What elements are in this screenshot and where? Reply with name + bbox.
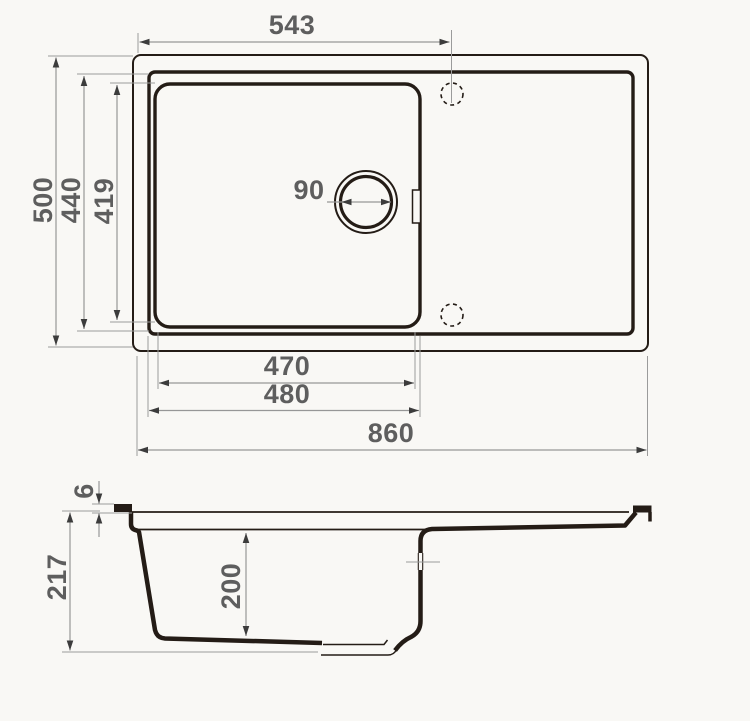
bowl-right-wall-and-drainboard xyxy=(421,513,637,554)
dim-label-overall-depth: 500 xyxy=(28,177,58,224)
dim-label-rim-opening-depth: 440 xyxy=(56,177,86,224)
dim-label-rim-thickness: 6 xyxy=(69,483,99,499)
technical-drawing-canvas: 543 500 440 419 90 xyxy=(0,0,750,721)
top-view: 543 500 440 419 90 xyxy=(28,10,648,456)
dim-label-bowl-inner-width: 470 xyxy=(264,351,311,381)
side-section-view: 6 217 200 xyxy=(42,481,652,655)
drain-recess-top xyxy=(323,640,388,645)
faucet-hole-bottom xyxy=(441,304,463,326)
dim-faucet-offset: 543 xyxy=(138,10,452,103)
dim-label-bowl-depth: 200 xyxy=(216,563,246,610)
overflow-slot xyxy=(413,190,421,223)
dim-label-faucet-offset: 543 xyxy=(269,10,316,40)
dim-bowl-depth: 200 xyxy=(216,533,246,636)
drain-recess-bottom xyxy=(321,650,397,656)
dim-label-drain-diameter: 90 xyxy=(293,175,324,205)
dim-bowl-front-to-back: 419 xyxy=(89,83,155,322)
dim-label-overall-height: 217 xyxy=(42,554,72,601)
bowl-edge xyxy=(155,84,420,327)
dim-label-overall-width: 860 xyxy=(368,418,415,448)
dim-label-bowl-outer-width: 480 xyxy=(264,379,311,409)
dim-label-bowl-front-to-back: 419 xyxy=(89,178,119,225)
dim-overall-width: 860 xyxy=(137,356,648,456)
sink-drawing: 543 500 440 419 90 xyxy=(0,0,750,721)
bowl-right-wall-lower xyxy=(395,570,421,651)
dim-overall-height: 217 xyxy=(42,511,318,652)
